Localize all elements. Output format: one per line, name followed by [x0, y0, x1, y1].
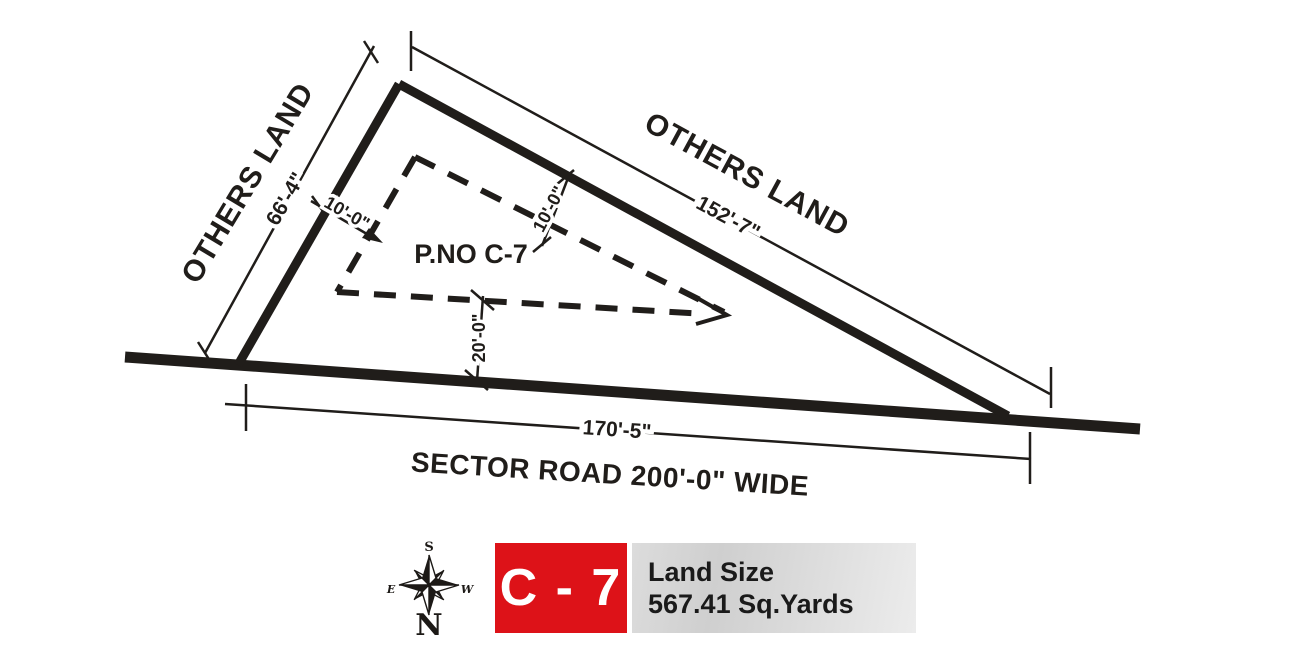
compass-north-label: N — [415, 608, 442, 643]
compass-rose-icon: S N E W — [376, 532, 482, 644]
land-size-panel: Land Size 567.41 Sq.Yards — [632, 543, 916, 633]
dimension-value-top: 152'-7" — [692, 192, 763, 245]
setback-value-bottom: 20'-0" — [469, 314, 489, 363]
compass-west-label: W — [461, 583, 475, 596]
setback-value-left: 10'-0" — [321, 192, 373, 234]
sector-road-line — [125, 357, 1140, 429]
site-plan-page: 66'-4" OTHERS LAND 152'-7" OTHERS LAND 1… — [0, 0, 1300, 650]
plot-number-badge-text: C - 7 — [500, 558, 623, 618]
compass-rose-svg: S N E W — [376, 532, 482, 644]
dimension-tick — [533, 237, 551, 252]
compass-south-label: S — [424, 540, 433, 555]
setback-dashed-bottom — [337, 292, 706, 314]
setback-arrowhead-icon — [696, 299, 727, 324]
land-size-value: 567.41 Sq.Yards — [648, 588, 916, 620]
plot-number-badge: C - 7 — [495, 543, 627, 633]
compass-east-label: E — [386, 583, 396, 596]
setback-value-top: 10'-0" — [529, 183, 570, 236]
road-label: SECTOR ROAD 200'-0" WIDE — [410, 446, 810, 501]
land-size-label: Land Size — [648, 556, 916, 588]
dimension-value-bottom: 170'-5" — [582, 416, 652, 444]
plot-number-label: P.NO C-7 — [414, 239, 528, 269]
